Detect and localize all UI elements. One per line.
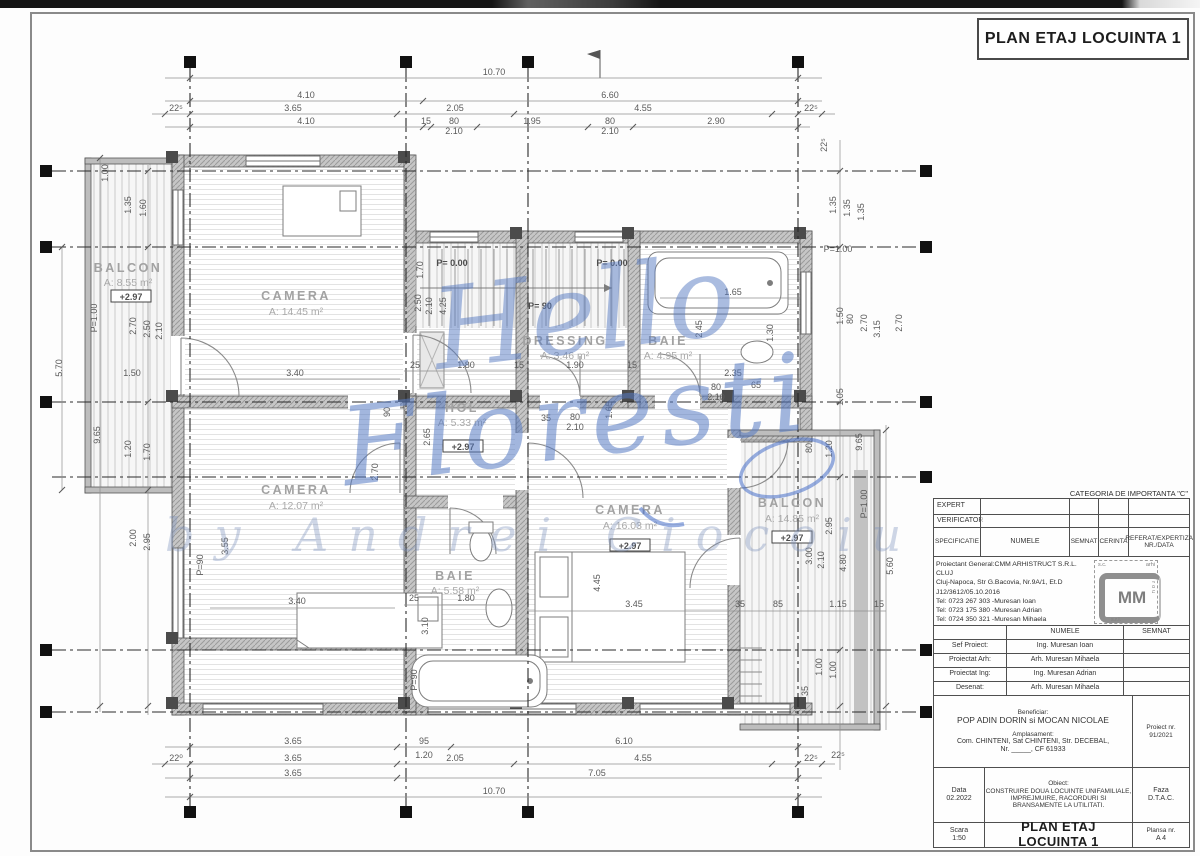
semnat-header: SEMNAT	[1069, 527, 1099, 557]
svg-text:80: 80	[449, 116, 459, 126]
svg-text:35: 35	[735, 599, 745, 609]
svg-text:1.70: 1.70	[142, 443, 152, 461]
beneficiar-block: Beneficiar: POP ADIN DORIN si MOCAN NICO…	[933, 695, 1133, 768]
svg-text:2.70: 2.70	[128, 317, 138, 335]
svg-text:A: 5.33 m²: A: 5.33 m²	[438, 417, 487, 429]
data-block: Data 02.2022	[933, 767, 985, 823]
svg-text:2.00: 2.00	[128, 529, 138, 547]
svg-text:3.10: 3.10	[420, 617, 430, 635]
svg-text:2.90: 2.90	[707, 116, 725, 126]
svg-text:2.10: 2.10	[601, 126, 619, 136]
svg-text:2.50: 2.50	[413, 294, 423, 312]
svg-text:1.65: 1.65	[724, 287, 742, 297]
svg-text:4.10: 4.10	[297, 90, 315, 100]
svg-text:1.35: 1.35	[856, 203, 866, 221]
svg-text:1.00: 1.00	[814, 658, 824, 676]
svg-text:P=90: P=90	[195, 554, 205, 575]
svg-text:3.65: 3.65	[284, 736, 302, 746]
svg-text:P= 0.00: P= 0.00	[596, 258, 627, 268]
svg-text:+2.97: +2.97	[452, 442, 475, 452]
svg-text:A: 12.07 m²: A: 12.07 m²	[269, 500, 324, 512]
designer-info: Proiectant General:CMM ARHISTRUCT S.R.L.…	[936, 560, 1088, 624]
svg-text:7.05: 7.05	[588, 768, 606, 778]
svg-text:1.15: 1.15	[829, 599, 847, 609]
svg-text:1.20: 1.20	[123, 440, 133, 458]
sink	[486, 589, 512, 627]
verificator-label: VERIFICATOR	[933, 514, 981, 528]
svg-text:4.80: 4.80	[838, 554, 848, 572]
referat-header: REFERAT/EXPERTIZA NR./DATA	[1128, 527, 1190, 557]
svg-text:2.70: 2.70	[894, 314, 904, 332]
specificatie-label: SPECIFICATIE	[933, 527, 981, 557]
svg-text:9.65: 9.65	[854, 433, 864, 451]
svg-text:5.70: 5.70	[54, 359, 64, 377]
svg-text:4.45: 4.45	[592, 574, 602, 592]
svg-text:2.10: 2.10	[424, 297, 434, 315]
numele-header: NUMELE	[980, 527, 1070, 557]
svg-text:25: 25	[410, 360, 420, 370]
svg-text:P=90: P=90	[409, 669, 419, 690]
toilet	[470, 529, 492, 561]
svg-text:2.10: 2.10	[707, 392, 725, 402]
svg-text:22⁰: 22⁰	[169, 753, 183, 763]
svg-text:80: 80	[804, 443, 814, 453]
cmm-logo: s.c. arhi birou MM s.r.l.	[1094, 560, 1158, 624]
svg-text:+2.97: +2.97	[619, 541, 642, 551]
svg-text:1.35: 1.35	[123, 196, 133, 214]
svg-text:2.50: 2.50	[142, 320, 152, 338]
svg-text:3.55: 3.55	[220, 537, 230, 555]
svg-text:1.80: 1.80	[457, 360, 475, 370]
svg-text:22⁵: 22⁵	[831, 750, 845, 760]
svg-text:1.35: 1.35	[842, 199, 852, 217]
svg-text:3.65: 3.65	[284, 753, 302, 763]
svg-text:A: 5.58 m²: A: 5.58 m²	[431, 585, 480, 597]
svg-text:A: 3.46 m²: A: 3.46 m²	[541, 350, 590, 362]
svg-text:15: 15	[874, 599, 884, 609]
svg-text:2.95: 2.95	[142, 533, 152, 551]
svg-text:2.45: 2.45	[694, 320, 704, 338]
svg-text:6.10: 6.10	[615, 736, 633, 746]
svg-text:5.60: 5.60	[885, 557, 895, 575]
svg-text:1.00: 1.00	[828, 661, 838, 679]
team-numele-header: NUMELE	[1006, 625, 1124, 640]
cerinta-header: CERINTA	[1098, 527, 1129, 557]
drawing-title: PLAN ETAJ LOCUINTA 1	[985, 30, 1181, 48]
svg-text:90: 90	[382, 407, 392, 417]
svg-text:A: 14.45 m²: A: 14.45 m²	[269, 306, 324, 318]
svg-text:CAMERA: CAMERA	[595, 503, 665, 517]
obiect-block: Obiect: CONSTRUIRE DOUA LOCUINTE UNIFAMI…	[984, 767, 1133, 823]
svg-text:1.65: 1.65	[604, 401, 614, 419]
svg-text:80: 80	[570, 412, 580, 422]
svg-text:1.95: 1.95	[523, 116, 541, 126]
svg-text:4.55: 4.55	[634, 753, 652, 763]
svg-text:2.05: 2.05	[446, 753, 464, 763]
svg-text:3.65: 3.65	[284, 768, 302, 778]
svg-text:2.95: 2.95	[824, 517, 834, 535]
svg-text:BAIE: BAIE	[435, 569, 475, 583]
svg-text:22⁵: 22⁵	[169, 103, 183, 113]
svg-text:1.35: 1.35	[828, 196, 838, 214]
svg-text:80: 80	[711, 382, 721, 392]
svg-text:35: 35	[541, 413, 551, 423]
svg-text:2.10: 2.10	[816, 551, 826, 569]
svg-text:A: 16.03 m²: A: 16.03 m²	[603, 520, 658, 532]
expert-label: EXPERT	[933, 498, 981, 515]
svg-text:CAMERA: CAMERA	[261, 483, 331, 497]
svg-text:P=1.00: P=1.00	[89, 304, 99, 333]
amplasament-line1: Com. CHINTENI, Sat CHINTENI, Str. DECEBA…	[957, 738, 1109, 746]
svg-text:A: 4.95 m²: A: 4.95 m²	[644, 350, 693, 362]
svg-text:P= 90: P= 90	[528, 301, 552, 311]
svg-text:15: 15	[627, 360, 637, 370]
svg-text:2.10: 2.10	[154, 322, 164, 340]
svg-text:P= 0.00: P= 0.00	[436, 258, 467, 268]
svg-text:15: 15	[514, 360, 524, 370]
svg-text:3.40: 3.40	[286, 368, 304, 378]
svg-text:2.10: 2.10	[445, 126, 463, 136]
scara-block: Scara 1:50	[933, 822, 985, 848]
plansa-block: Plansa nr. A 4	[1132, 822, 1190, 848]
svg-text:BAIE: BAIE	[648, 334, 688, 348]
plan-title-cell: PLAN ETAJ LOCUINTA 1	[984, 822, 1133, 848]
svg-text:65: 65	[751, 380, 761, 390]
svg-text:80: 80	[845, 314, 855, 324]
svg-text:35: 35	[800, 686, 810, 696]
svg-text:10.70: 10.70	[483, 786, 506, 796]
svg-text:2.10: 2.10	[566, 422, 584, 432]
faza-block: Faza D.T.A.C.	[1132, 767, 1190, 823]
svg-text:+2.97: +2.97	[120, 292, 143, 302]
svg-text:95: 95	[419, 736, 429, 746]
svg-text:22⁵: 22⁵	[804, 103, 818, 113]
svg-text:2.70: 2.70	[370, 463, 380, 481]
svg-text:3.15: 3.15	[872, 320, 882, 338]
drawing-sheet: PLAN ETAJ LOCUINTA 1	[0, 0, 1200, 856]
svg-text:+2.97: +2.97	[781, 533, 804, 543]
svg-text:6.60: 6.60	[601, 90, 619, 100]
svg-text:9.65: 9.65	[92, 426, 102, 444]
svg-text:15: 15	[421, 116, 431, 126]
svg-text:1.50: 1.50	[123, 368, 141, 378]
svg-text:BALCON: BALCON	[94, 261, 162, 275]
proiect-nr-block: Proiect nr. 91/2021	[1132, 695, 1190, 768]
svg-text:3.45: 3.45	[625, 599, 643, 609]
floor-plan: 10.70 4.10 6.60 22⁵ 3.65 2.05 4.55 22⁵ 4…	[0, 0, 935, 856]
svg-text:1.00: 1.00	[100, 164, 110, 182]
svg-text:A: 14.85 m²: A: 14.85 m²	[765, 513, 820, 525]
svg-text:P=1.00: P=1.00	[824, 244, 853, 254]
svg-text:22⁵: 22⁵	[804, 753, 818, 763]
section-flag	[587, 50, 600, 78]
svg-text:4.10: 4.10	[297, 116, 315, 126]
svg-text:P=1.00: P=1.00	[859, 490, 869, 519]
svg-text:1.05: 1.05	[835, 388, 845, 406]
svg-text:1.30: 1.30	[765, 324, 775, 342]
sink-top	[741, 341, 773, 363]
svg-text:3.40: 3.40	[288, 596, 306, 606]
svg-text:1.20: 1.20	[415, 750, 433, 760]
svg-text:2.65: 2.65	[422, 428, 432, 446]
svg-text:CAMERA: CAMERA	[261, 289, 331, 303]
svg-text:25: 25	[409, 593, 419, 603]
svg-text:1.60: 1.60	[138, 199, 148, 217]
beneficiar-names: POP ADIN DORIN si MOCAN NICOLAE	[957, 716, 1109, 726]
category-label: CATEGORIA DE IMPORTANTA "C"	[933, 489, 1188, 498]
drawing-title-box: PLAN ETAJ LOCUINTA 1	[977, 18, 1189, 60]
amplasament-line2: Nr. _____, CF 61933	[1001, 746, 1066, 754]
svg-text:2.70: 2.70	[859, 314, 869, 332]
svg-text:1.50: 1.50	[835, 307, 845, 325]
svg-text:2.35: 2.35	[724, 368, 742, 378]
svg-text:DRESSING: DRESSING	[522, 334, 607, 348]
svg-text:3.65: 3.65	[284, 103, 302, 113]
svg-text:A: 8.55 m²: A: 8.55 m²	[104, 277, 153, 289]
svg-text:2.05: 2.05	[446, 103, 464, 113]
svg-text:1.70: 1.70	[415, 261, 425, 279]
svg-text:85: 85	[773, 599, 783, 609]
svg-text:22⁵: 22⁵	[819, 138, 829, 152]
svg-text:4.25: 4.25	[438, 297, 448, 315]
svg-text:3.00: 3.00	[804, 547, 814, 565]
svg-text:10.70: 10.70	[483, 67, 506, 77]
svg-text:4.55: 4.55	[634, 103, 652, 113]
svg-text:HOL: HOL	[445, 401, 479, 415]
team-semnat-header: SEMNAT	[1123, 625, 1190, 640]
svg-text:80: 80	[605, 116, 615, 126]
